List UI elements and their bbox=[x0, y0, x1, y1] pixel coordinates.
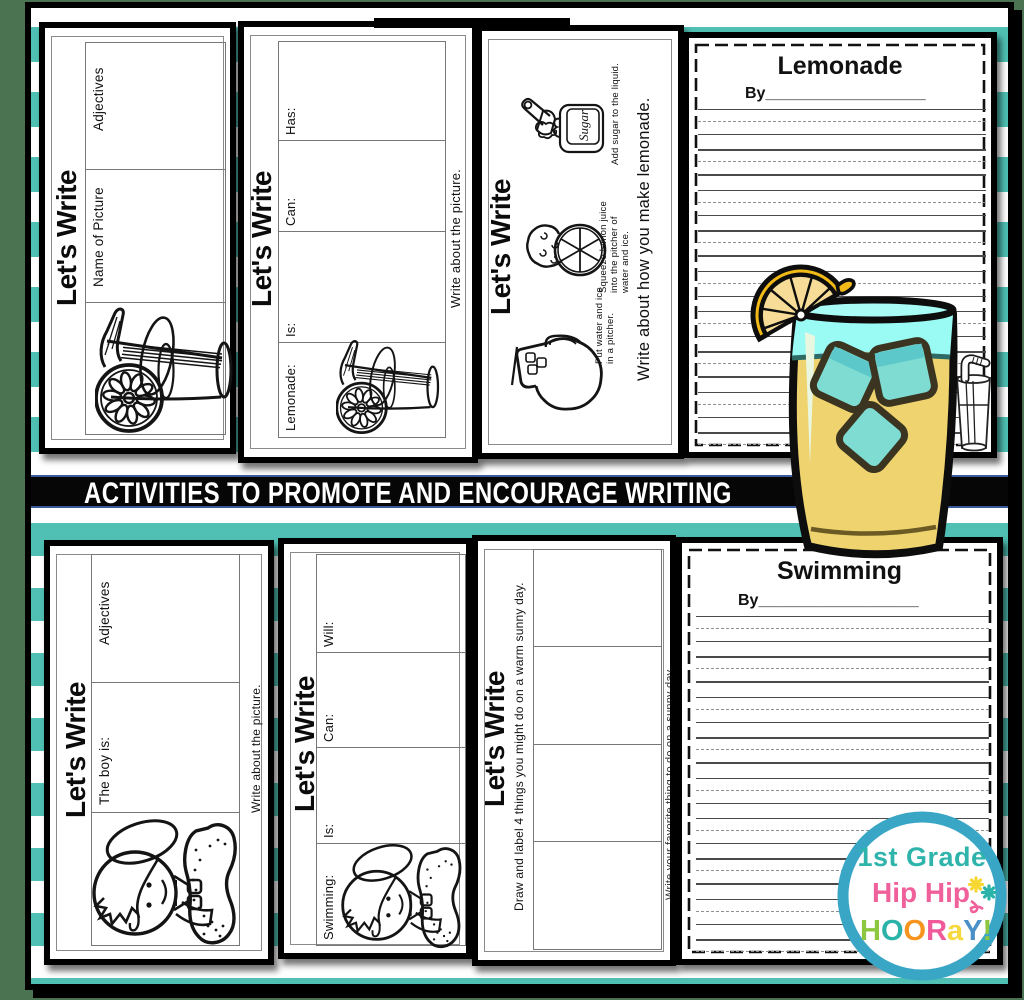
svg-text:Sugar: Sugar bbox=[576, 109, 591, 141]
